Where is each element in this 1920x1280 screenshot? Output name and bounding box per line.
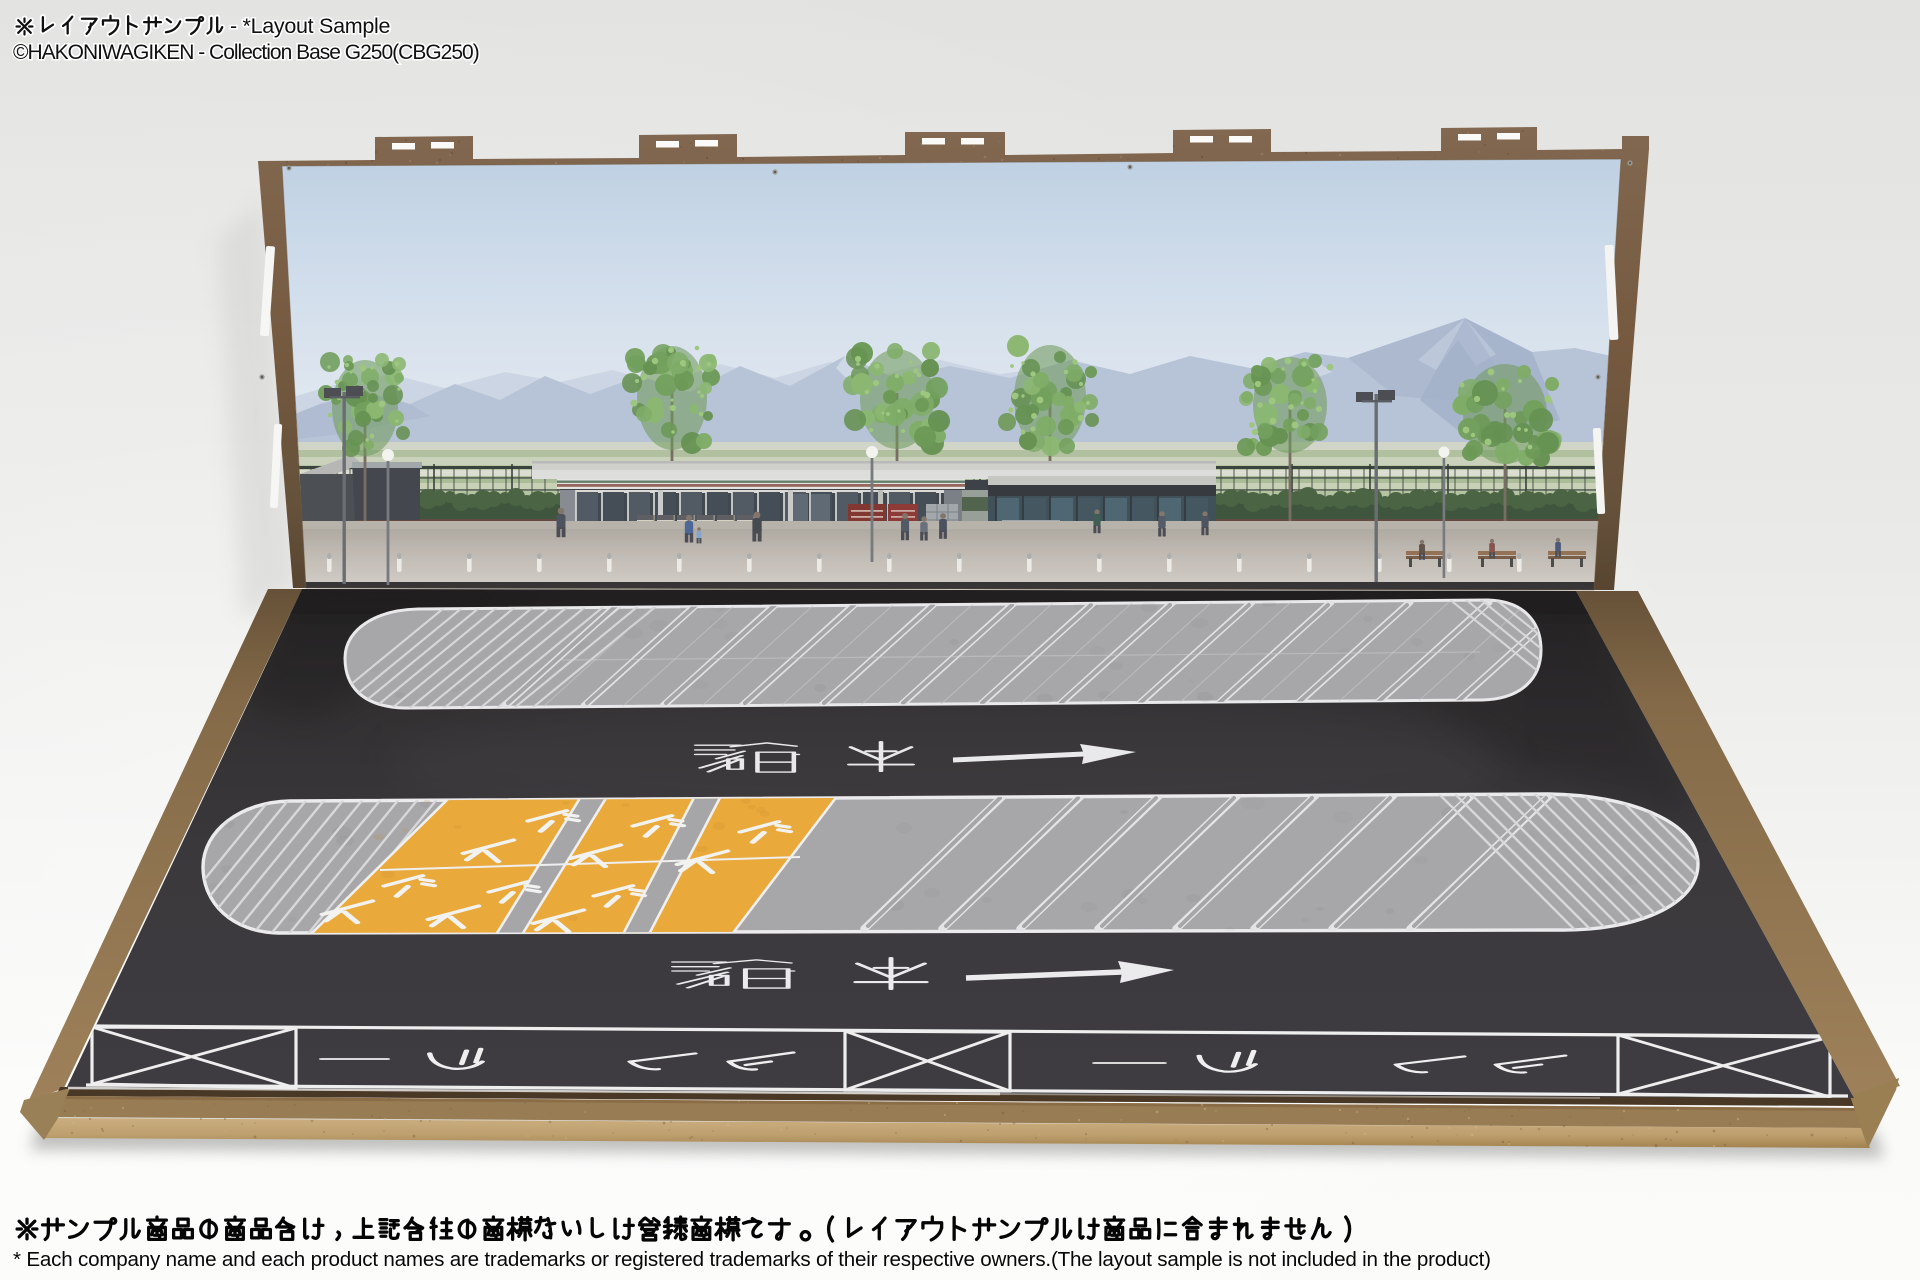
svg-text:- *Layout Sample: - *Layout Sample: [230, 14, 390, 38]
svg-text:©HAKONIWAGIKEN - Collection Ba: ©HAKONIWAGIKEN - Collection Base G250(CB…: [13, 41, 479, 64]
svg-text:* Each company name and each p: * Each company name and each product nam…: [13, 1248, 1491, 1271]
